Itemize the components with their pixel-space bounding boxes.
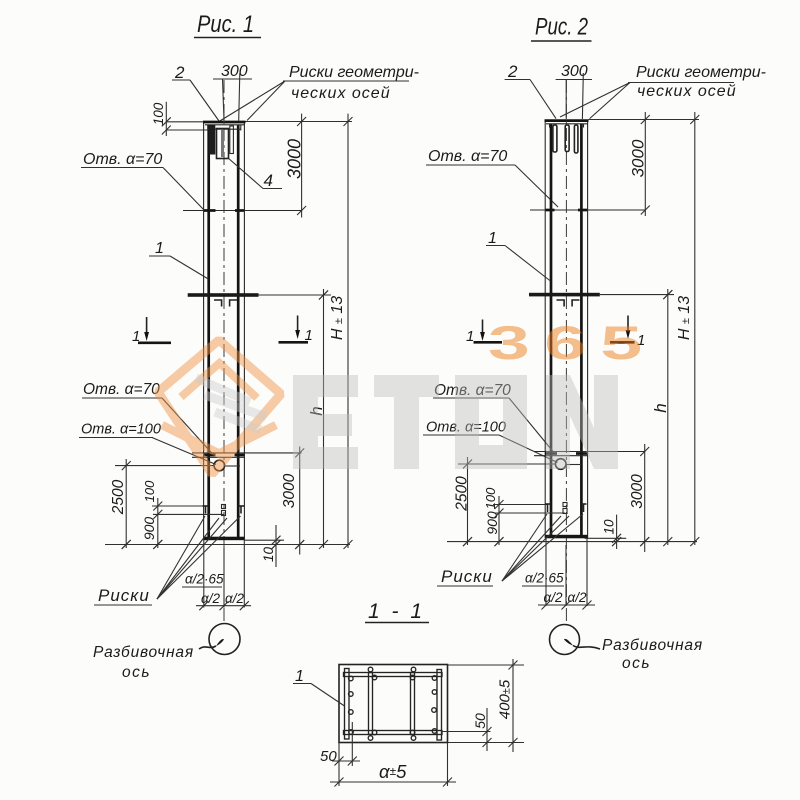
- svg-text:100: 100: [142, 480, 157, 502]
- svg-text:Риски: Риски: [98, 586, 150, 605]
- svg-text:Отв. α=70: Отв. α=70: [428, 148, 507, 165]
- svg-text:100: 100: [483, 487, 498, 509]
- svg-text:ческих осей: ческих осей: [291, 85, 391, 102]
- svg-text:ось: ось: [622, 655, 651, 672]
- svg-text:α/2·65: α/2·65: [185, 572, 224, 587]
- svg-text:2500: 2500: [110, 479, 127, 515]
- svg-text:ось: ось: [122, 664, 151, 681]
- svg-text:3000: 3000: [629, 474, 646, 509]
- svg-text:2: 2: [507, 62, 518, 81]
- svg-text:Отв. α=100: Отв. α=100: [81, 422, 161, 438]
- svg-text:3000: 3000: [281, 473, 298, 508]
- svg-text:50: 50: [472, 713, 488, 729]
- svg-text:Отв. α=70: Отв. α=70: [83, 151, 162, 168]
- svg-text:Разбивочная: Разбивочная: [93, 644, 194, 661]
- svg-text:1: 1: [155, 240, 164, 257]
- svg-text:α/2·65: α/2·65: [525, 571, 564, 586]
- svg-text:Риски: Риски: [441, 567, 493, 586]
- svg-text:H ± 13: H ± 13: [329, 296, 346, 340]
- svg-text:50: 50: [320, 748, 337, 765]
- svg-text:400±5: 400±5: [496, 679, 513, 719]
- svg-text:1 - 1: 1 - 1: [368, 600, 425, 623]
- svg-text:300: 300: [561, 63, 588, 80]
- svg-text:4: 4: [264, 171, 273, 190]
- svg-text:Отв. α=70: Отв. α=70: [83, 381, 160, 398]
- svg-text:1: 1: [295, 668, 304, 685]
- svg-text:1: 1: [466, 328, 474, 345]
- svg-text:10: 10: [601, 519, 616, 535]
- svg-text:Разбивочная: Разбивочная: [602, 637, 703, 654]
- svg-text:H ± 13: H ± 13: [676, 296, 693, 340]
- svg-text:Риски геометри-: Риски геометри-: [289, 64, 419, 81]
- svg-text:α/2: α/2: [568, 590, 587, 605]
- svg-text:365: 365: [488, 317, 657, 369]
- svg-text:1: 1: [488, 230, 497, 247]
- svg-text:α/2: α/2: [544, 590, 563, 605]
- svg-text:α/2: α/2: [225, 591, 244, 606]
- svg-text:10: 10: [261, 547, 276, 563]
- svg-text:100: 100: [151, 102, 166, 125]
- svg-text:α/2: α/2: [201, 591, 220, 606]
- svg-text:Рис. 1: Рис. 1: [197, 11, 254, 38]
- svg-text:900: 900: [141, 517, 157, 541]
- svg-text:300: 300: [221, 63, 248, 80]
- svg-text:ческих осей: ческих осей: [637, 83, 737, 100]
- svg-text:2: 2: [174, 63, 185, 82]
- svg-text:Риски геометри-: Риски геометри-: [636, 64, 766, 81]
- svg-text:Рис. 2: Рис. 2: [535, 14, 588, 41]
